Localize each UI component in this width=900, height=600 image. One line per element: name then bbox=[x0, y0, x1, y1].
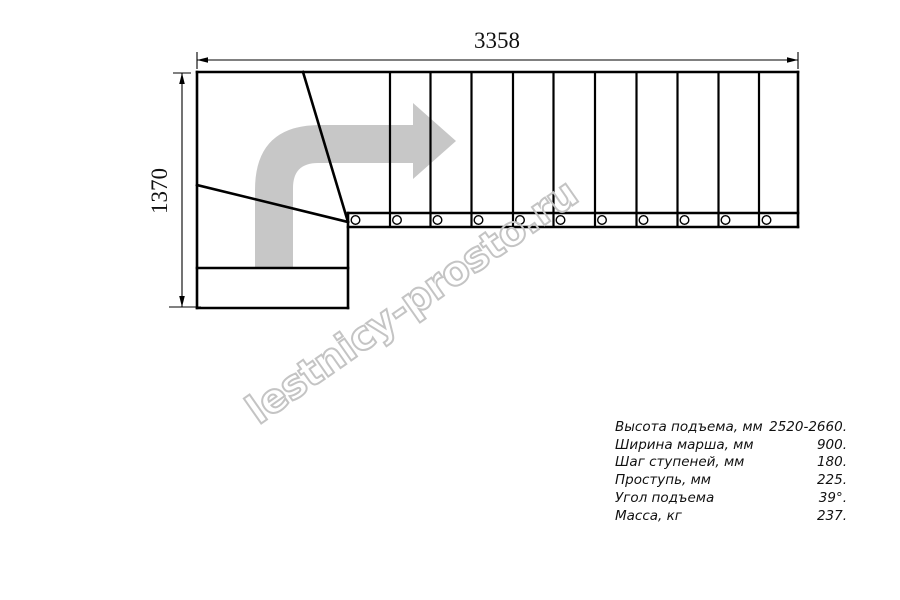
spec-label: Высота подъема, мм bbox=[615, 419, 763, 437]
spec-value: 225. bbox=[817, 472, 847, 490]
dimension-height-label: 1370 bbox=[147, 168, 172, 214]
spec-row-height: Высота подъема, мм 2520-2660. bbox=[615, 419, 847, 437]
spec-row-mass: Масса, кг 237. bbox=[615, 508, 847, 526]
direction-arrow-icon bbox=[255, 103, 456, 268]
spec-value: 180. bbox=[817, 454, 847, 472]
spec-label: Шаг ступеней, мм bbox=[615, 454, 744, 472]
spec-row-tread: Проступь, мм 225. bbox=[615, 472, 847, 490]
spec-value: 39°. bbox=[819, 490, 847, 508]
dimension-width-label: 3358 bbox=[474, 28, 520, 53]
baluster-circles bbox=[351, 216, 771, 225]
spec-value: 900. bbox=[817, 437, 847, 455]
staircase-drawing-page: 3358 1370 lestnicy-prosto.ru Высота подъ… bbox=[0, 0, 900, 600]
spec-label: Масса, кг bbox=[615, 508, 682, 526]
spec-row-step: Шаг ступеней, мм 180. bbox=[615, 454, 847, 472]
specs-table: Высота подъема, мм 2520-2660. Ширина мар… bbox=[615, 419, 847, 525]
spec-value: 2520-2660. bbox=[769, 419, 847, 437]
spec-label: Проступь, мм bbox=[615, 472, 711, 490]
spec-value: 237. bbox=[817, 508, 847, 526]
spec-label: Угол подъема bbox=[615, 490, 714, 508]
spec-label: Ширина марша, мм bbox=[615, 437, 754, 455]
spec-row-angle: Угол подъема 39°. bbox=[615, 490, 847, 508]
dimension-width bbox=[197, 52, 798, 69]
spec-row-flight-width: Ширина марша, мм 900. bbox=[615, 437, 847, 455]
